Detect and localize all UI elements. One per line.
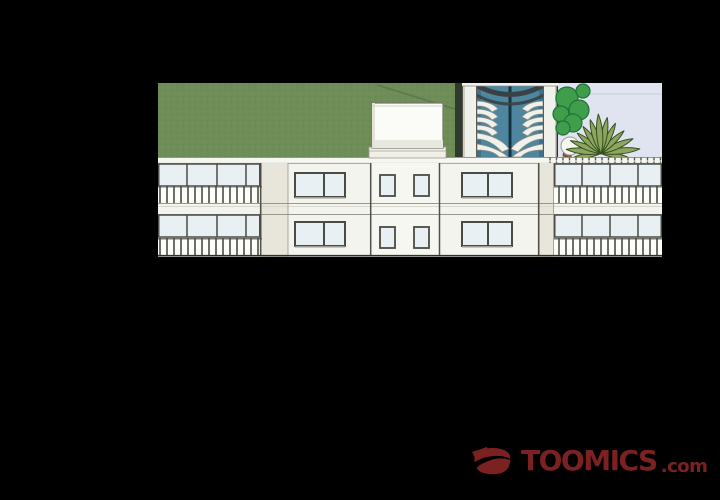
corner-face-right: [538, 163, 554, 257]
rooftop-box: [369, 103, 446, 158]
toomics-watermark: TOOMICS .com: [470, 443, 707, 479]
hedge-tower-shadow: [455, 83, 462, 157]
page-background: { "watermark": { "brand": "TOOMICS", "su…: [0, 0, 720, 500]
comic-panel: [158, 83, 662, 257]
toomics-logo-text: TOOMICS: [521, 447, 657, 475]
corner-face-left: [260, 163, 288, 257]
toomics-logo-icon: [470, 444, 514, 478]
residential-tower: [462, 83, 558, 157]
toomics-logo-suffix: .com: [661, 458, 708, 479]
